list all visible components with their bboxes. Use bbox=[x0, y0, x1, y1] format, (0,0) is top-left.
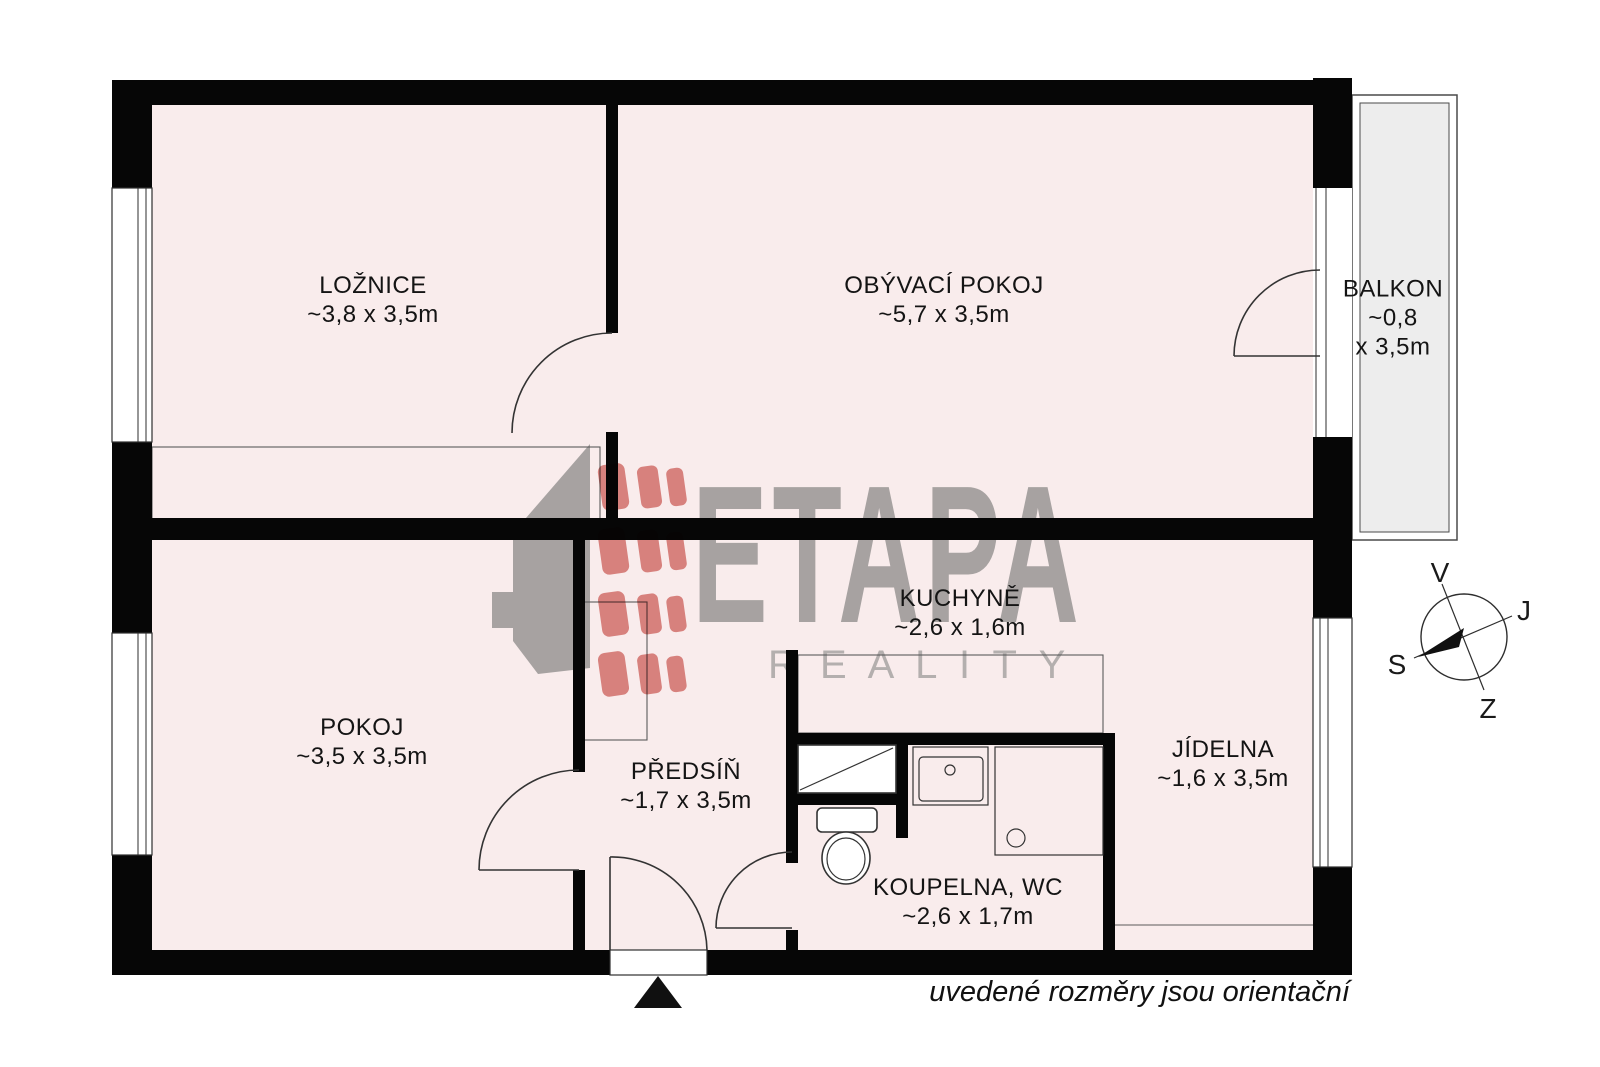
disclaimer-note: uvedené rozměry jsou orientační bbox=[929, 976, 1350, 1009]
compass-label-west: Z bbox=[1479, 693, 1496, 724]
room-label-balkon: BALKON ~0,8 x 3,5m bbox=[1343, 275, 1443, 362]
bedroom-window bbox=[112, 188, 152, 442]
entrance-arrow-icon bbox=[634, 976, 682, 1008]
room-name: LOŽNICE bbox=[307, 271, 439, 300]
room-label-obyvaci-pokoj: OBÝVACÍ POKOJ ~5,7 x 3,5m bbox=[844, 271, 1043, 329]
entrance-opening bbox=[610, 950, 707, 975]
room-name: PŘEDSÍŇ bbox=[620, 757, 752, 786]
compass-label-north: S bbox=[1388, 649, 1407, 680]
room-dims: ~1,6 x 3,5m bbox=[1157, 764, 1289, 793]
room-name: KUCHYNĚ bbox=[894, 584, 1026, 613]
room-name: OBÝVACÍ POKOJ bbox=[844, 271, 1043, 300]
room-label-pokoj: POKOJ ~3,5 x 3,5m bbox=[296, 713, 428, 771]
compass-needle-icon bbox=[1418, 628, 1464, 657]
compass-rose: V J S Z bbox=[1388, 557, 1531, 724]
bathtub-icon bbox=[798, 745, 896, 793]
room-dims: ~0,8 bbox=[1343, 304, 1443, 333]
room-window bbox=[112, 633, 152, 855]
room-dims: ~5,7 x 3,5m bbox=[844, 300, 1043, 329]
room-dims: ~3,5 x 3,5m bbox=[296, 742, 428, 771]
logo-chimney-icon bbox=[492, 592, 513, 628]
floor-plan-drawing: ETAPA R E A L I T Y bbox=[0, 0, 1600, 1067]
logo-tagline: R E A L I T Y bbox=[768, 643, 1071, 687]
room-dims: x 3,5m bbox=[1343, 333, 1443, 362]
room-dims: ~2,6 x 1,7m bbox=[873, 902, 1063, 931]
room-name: JÍDELNA bbox=[1157, 735, 1289, 764]
room-name: POKOJ bbox=[296, 713, 428, 742]
floor-plan-canvas: ETAPA R E A L I T Y bbox=[0, 0, 1600, 1067]
room-label-loznice: LOŽNICE ~3,8 x 3,5m bbox=[307, 271, 439, 329]
room-label-predsin: PŘEDSÍŇ ~1,7 x 3,5m bbox=[620, 757, 752, 815]
room-name: KOUPELNA, WC bbox=[873, 873, 1063, 902]
room-dims: ~2,6 x 1,6m bbox=[894, 613, 1026, 642]
compass-label-east: V bbox=[1431, 557, 1450, 588]
room-dims: ~3,8 x 3,5m bbox=[307, 300, 439, 329]
room-label-jidelna: JÍDELNA ~1,6 x 3,5m bbox=[1157, 735, 1289, 793]
room-name: BALKON bbox=[1343, 275, 1443, 304]
dining-window bbox=[1313, 618, 1352, 867]
room-dims: ~1,7 x 3,5m bbox=[620, 786, 752, 815]
room-label-kuchyne: KUCHYNĚ ~2,6 x 1,6m bbox=[894, 584, 1026, 642]
room-label-koupelna: KOUPELNA, WC ~2,6 x 1,7m bbox=[873, 873, 1063, 931]
compass-label-south: J bbox=[1517, 595, 1531, 626]
